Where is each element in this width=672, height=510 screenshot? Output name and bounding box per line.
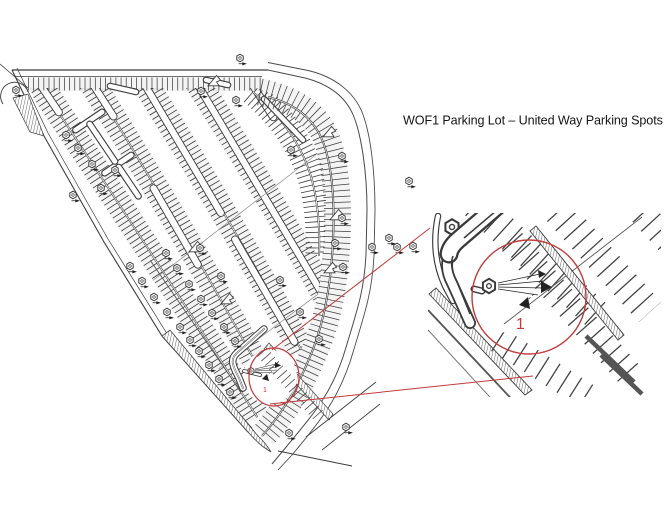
svg-text:1: 1 [516,316,525,333]
svg-text:1: 1 [263,387,267,394]
svg-text:WOF1 Parking Lot – United Way: WOF1 Parking Lot – United Way Parking Sp… [403,114,663,128]
